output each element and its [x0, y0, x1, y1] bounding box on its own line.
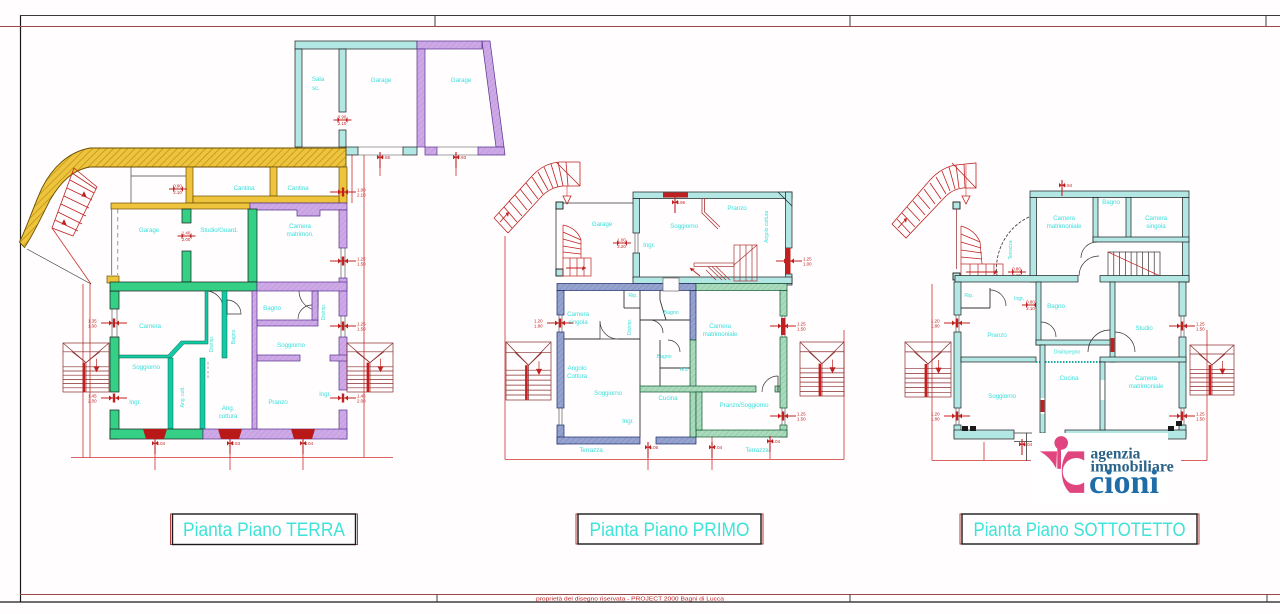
svg-text:Disimp.: Disimp.: [321, 304, 327, 321]
svg-text:Pranzo: Pranzo: [987, 332, 1007, 339]
svg-text:Ingr.: Ingr.: [622, 418, 634, 425]
svg-text:Bagno: Bagno: [663, 310, 678, 316]
svg-text:5.04: 5.04: [772, 439, 781, 444]
svg-text:2.00: 2.00: [88, 399, 97, 404]
svg-text:Studio/Guard.: Studio/Guard.: [200, 227, 238, 234]
svg-text:2.53: 2.53: [232, 441, 241, 446]
svg-text:matrimon.: matrimon.: [286, 231, 313, 238]
svg-text:0.90: 0.90: [338, 115, 347, 120]
svg-text:Pranzo/Soggiorno: Pranzo/Soggiorno: [720, 402, 769, 409]
svg-text:Soggiorno: Soggiorno: [670, 223, 698, 230]
svg-text:singola: singola: [1146, 223, 1166, 230]
svg-text:Pianta Piano TERRA: Pianta Piano TERRA: [183, 520, 345, 541]
svg-text:Soggiorno: Soggiorno: [594, 390, 622, 397]
svg-text:Camera: Camera: [1145, 215, 1167, 222]
svg-text:matrimoniale: matrimoniale: [1047, 223, 1082, 230]
svg-text:Angolo cottura: Angolo cottura: [764, 211, 770, 243]
svg-text:0.80: 0.80: [1026, 300, 1035, 305]
svg-text:proprietà del disegno riservat: proprietà del disegno riservata - PROJEC…: [536, 597, 725, 603]
svg-text:Camera: Camera: [1135, 375, 1157, 382]
svg-text:Pranzo: Pranzo: [727, 205, 747, 212]
svg-text:cioni: cioni: [1089, 464, 1159, 501]
svg-text:2.00: 2.00: [357, 399, 366, 404]
svg-text:Terrazza: Terrazza: [745, 447, 769, 454]
svg-text:Soggiorno: Soggiorno: [132, 364, 160, 371]
svg-text:1.50: 1.50: [1196, 327, 1205, 332]
svg-text:0.90: 0.90: [173, 184, 182, 189]
svg-text:Cantina: Cantina: [287, 185, 309, 192]
svg-text:Bagno: Bagno: [231, 330, 237, 345]
svg-text:cottura: cottura: [219, 413, 238, 420]
svg-text:Soggiorno: Soggiorno: [277, 342, 305, 349]
svg-text:Ant.: Ant.: [680, 367, 689, 373]
svg-text:Camera: Camera: [567, 311, 589, 318]
svg-text:Studio: Studio: [1135, 325, 1153, 332]
svg-text:matrimoniale: matrimoniale: [703, 331, 738, 338]
svg-text:Disimp.: Disimp.: [627, 319, 633, 335]
svg-text:Garage: Garage: [451, 77, 472, 84]
svg-text:Rip.: Rip.: [964, 293, 973, 299]
svg-text:2.10: 2.10: [1026, 306, 1035, 311]
svg-text:4.04: 4.04: [157, 441, 166, 446]
svg-text:Bagno: Bagno: [263, 305, 281, 312]
svg-text:Garage: Garage: [592, 221, 613, 228]
svg-text:1.00: 1.00: [803, 262, 812, 267]
svg-text:Ingr.: Ingr.: [129, 399, 141, 406]
svg-text:1.80: 1.80: [931, 417, 940, 422]
svg-text:Cucina: Cucina: [658, 395, 678, 402]
svg-text:Ang.: Ang.: [222, 405, 235, 412]
svg-text:singola: singola: [568, 319, 588, 326]
svg-text:1.50: 1.50: [357, 262, 366, 267]
svg-text:2.20: 2.20: [617, 244, 626, 249]
svg-text:Pianta Piano SOTTOTETTO: Pianta Piano SOTTOTETTO: [974, 520, 1186, 541]
svg-text:Pianta Piano PRIMO: Pianta Piano PRIMO: [590, 520, 750, 541]
svg-text:2.10: 2.10: [173, 190, 182, 195]
svg-text:1.00: 1.00: [617, 238, 626, 243]
svg-text:sc.: sc.: [312, 85, 320, 92]
svg-text:1.50: 1.50: [797, 417, 806, 422]
svg-text:5.04: 5.04: [1024, 442, 1033, 447]
svg-text:2.85: 2.85: [382, 155, 391, 160]
svg-text:Camera: Camera: [709, 323, 731, 330]
svg-text:2.93: 2.93: [458, 155, 467, 160]
svg-text:Garage: Garage: [139, 227, 160, 234]
svg-text:1.50: 1.50: [797, 327, 806, 332]
svg-text:Disimpegno: Disimpegno: [1054, 350, 1081, 356]
svg-text:2.10: 2.10: [357, 193, 366, 198]
svg-text:1.80: 1.80: [534, 324, 543, 329]
svg-text:Camera: Camera: [289, 223, 311, 230]
svg-text:Terrazza: Terrazza: [1008, 240, 1014, 259]
svg-text:4.04: 4.04: [305, 441, 314, 446]
svg-text:Garage: Garage: [371, 77, 392, 84]
svg-text:Cucina: Cucina: [1059, 375, 1079, 382]
svg-text:Cottura: Cottura: [567, 373, 588, 380]
svg-text:Ingr.: Ingr.: [1014, 296, 1024, 302]
svg-text:2.10: 2.10: [338, 121, 347, 126]
svg-text:2.00: 2.00: [182, 237, 191, 242]
svg-text:Bagno: Bagno: [656, 354, 671, 360]
svg-text:Bagno: Bagno: [1047, 303, 1065, 310]
svg-text:1.50: 1.50: [357, 327, 366, 332]
svg-text:0.94: 0.94: [1064, 183, 1073, 188]
svg-text:matrimoniale: matrimoniale: [1129, 383, 1164, 390]
svg-text:Disimp.: Disimp.: [209, 336, 215, 353]
svg-text:1.00: 1.00: [88, 324, 97, 329]
svg-text:Ingr.: Ingr.: [319, 391, 331, 398]
svg-text:4.96: 4.96: [677, 200, 686, 205]
svg-text:Rip.: Rip.: [628, 293, 637, 299]
svg-text:Ang. cott.: Ang. cott.: [180, 387, 186, 408]
svg-text:1.50: 1.50: [1196, 417, 1205, 422]
svg-text:Camera: Camera: [139, 323, 161, 330]
svg-text:7.04: 7.04: [714, 445, 723, 450]
svg-text:Angolo: Angolo: [567, 365, 587, 372]
svg-text:5.06: 5.06: [650, 445, 659, 450]
svg-text:Terrazza: Terrazza: [579, 447, 603, 454]
svg-text:Soggiorno: Soggiorno: [988, 393, 1016, 400]
svg-text:1.80: 1.80: [931, 324, 940, 329]
svg-text:Camera: Camera: [1053, 215, 1075, 222]
svg-text:Bagno: Bagno: [1102, 199, 1120, 206]
svg-text:Ingr.: Ingr.: [643, 242, 655, 249]
svg-text:1.40: 1.40: [182, 231, 191, 236]
svg-text:Sala: Sala: [312, 76, 325, 83]
svg-text:Cantina: Cantina: [233, 185, 255, 192]
svg-text:Pranzo: Pranzo: [268, 399, 288, 406]
svg-text:0.80: 0.80: [1012, 267, 1021, 272]
